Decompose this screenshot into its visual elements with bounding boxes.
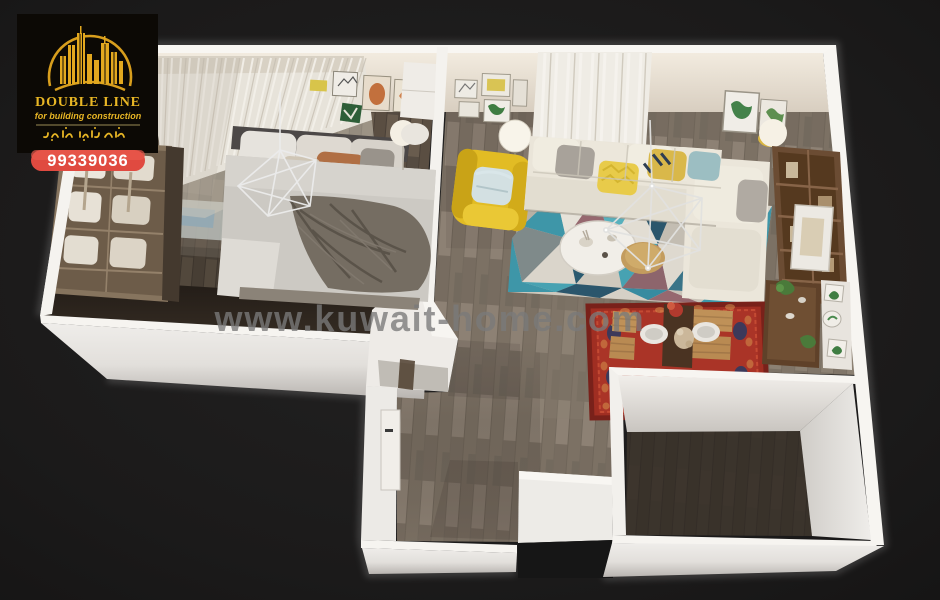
svg-text:99339036: 99339036 [47, 152, 128, 170]
svg-text:www.kuwait-home.com: www.kuwait-home.com [214, 298, 646, 339]
svg-text:for building construction: for building construction [35, 111, 142, 121]
svg-text:DOUBLE LINE: DOUBLE LINE [35, 95, 141, 110]
